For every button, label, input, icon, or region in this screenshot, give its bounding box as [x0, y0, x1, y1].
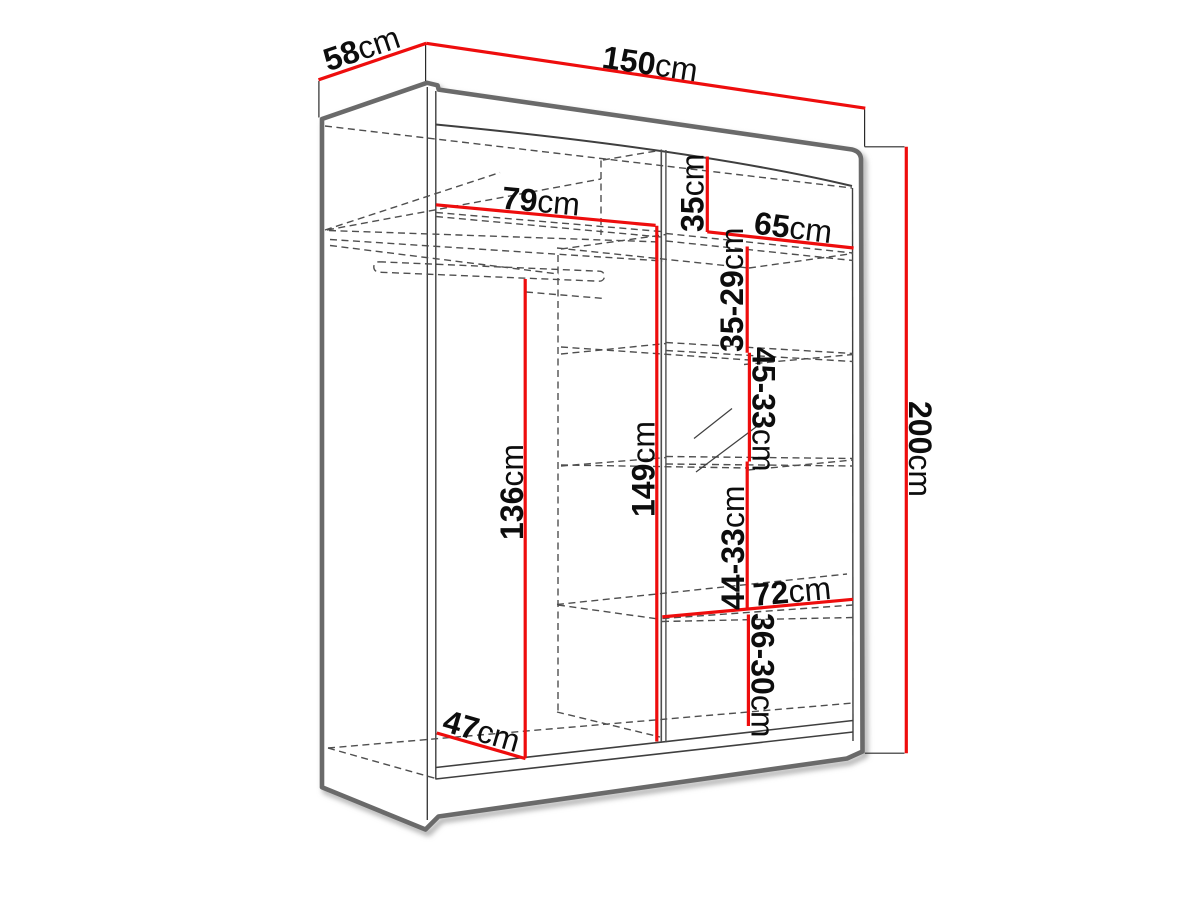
svg-text:200cm: 200cm	[902, 401, 938, 497]
svg-text:149cm: 149cm	[626, 421, 662, 517]
svg-text:36-30cm: 36-30cm	[745, 613, 781, 738]
svg-text:136cm: 136cm	[494, 444, 530, 540]
svg-text:35-29cm: 35-29cm	[714, 228, 750, 353]
svg-text:44-33cm: 44-33cm	[715, 486, 751, 611]
svg-text:45-33cm: 45-33cm	[746, 347, 782, 472]
svg-text:79cm: 79cm	[500, 180, 581, 223]
svg-text:72cm: 72cm	[751, 570, 832, 613]
svg-text:35cm: 35cm	[675, 154, 711, 232]
